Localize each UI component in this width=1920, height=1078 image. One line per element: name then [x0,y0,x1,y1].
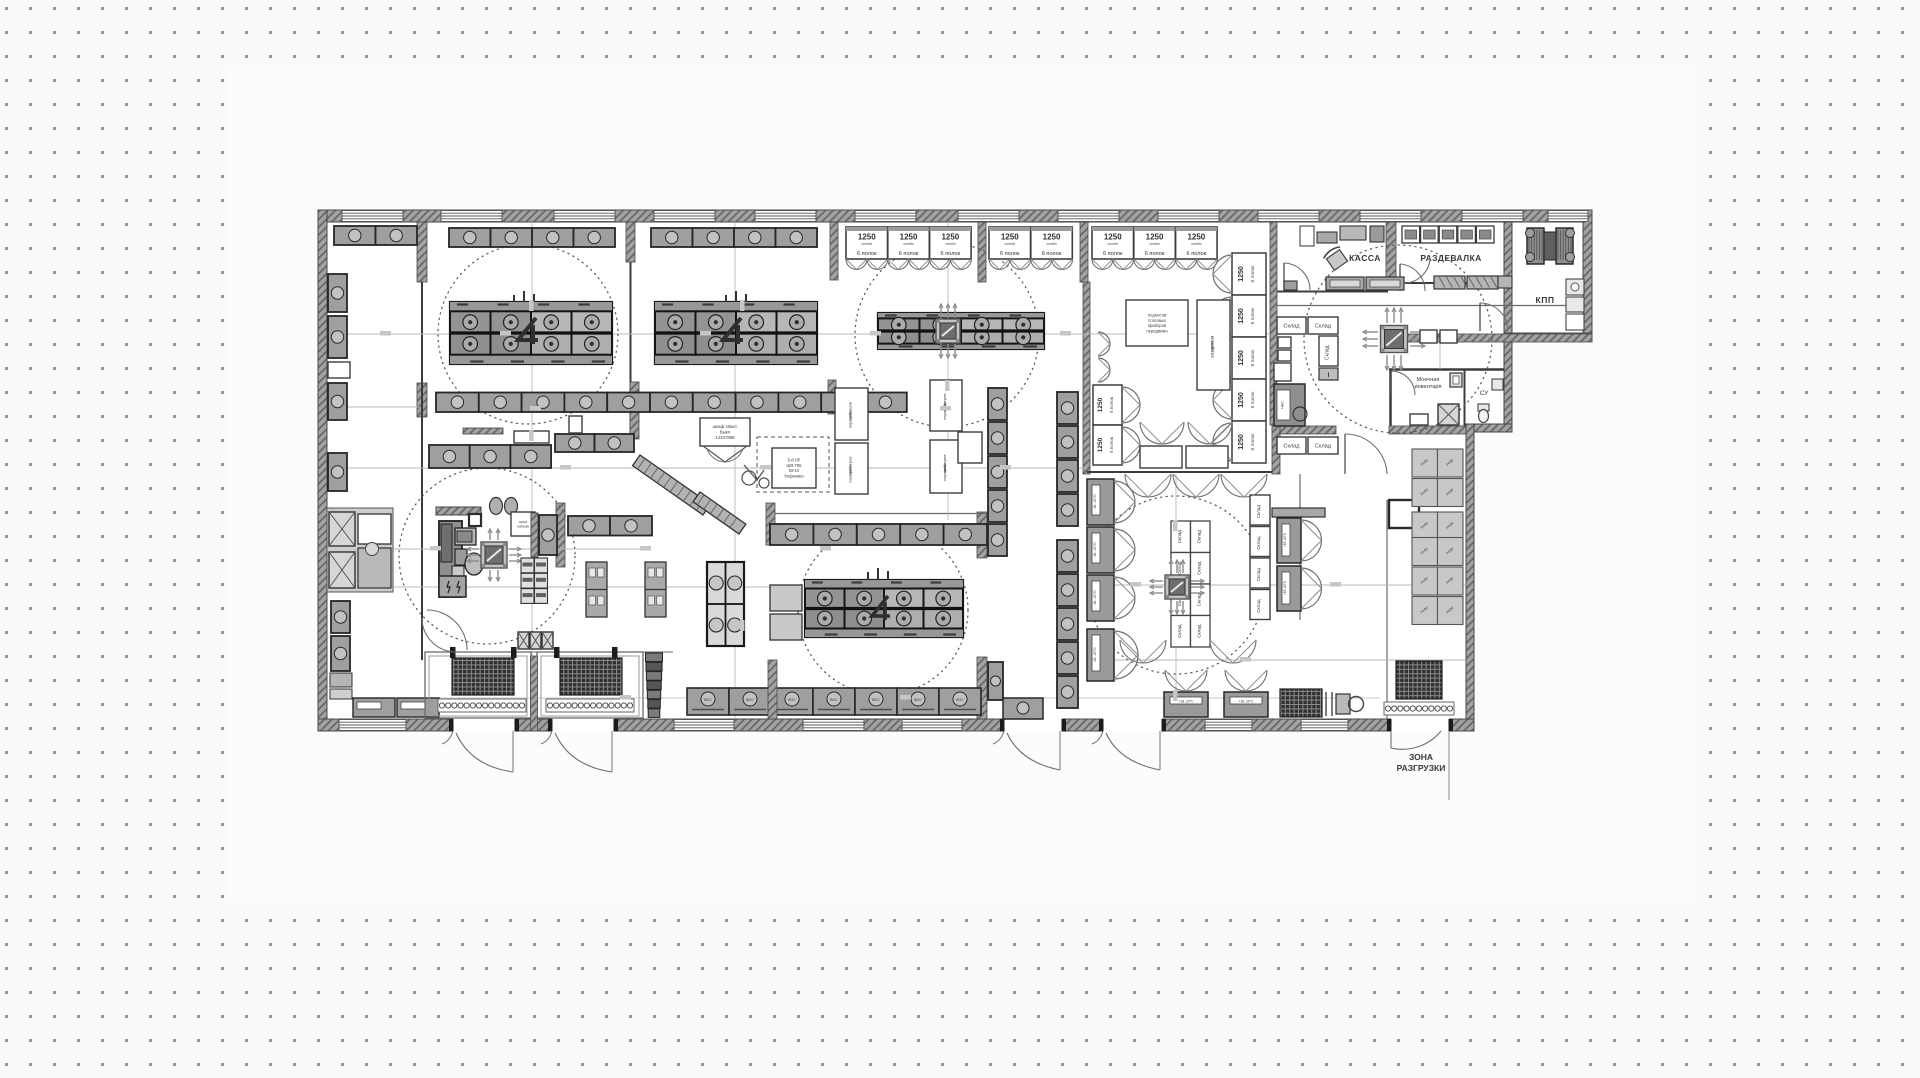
svg-text:направ: направ [517,525,529,529]
svg-text:паровой: паровой [848,467,853,482]
svg-text:1250: 1250 [1001,233,1019,242]
svg-text:1250: 1250 [1097,437,1104,452]
svg-text:14347888: 14347888 [715,435,735,440]
svg-text:линейн: линейн [1149,242,1160,246]
svg-text:1250: 1250 [1238,350,1245,366]
svg-text:1250: 1250 [1104,233,1122,242]
svg-text:ВОС: ВОС [788,698,796,702]
svg-text:1250: 1250 [1238,308,1245,324]
svg-text:Склад: Склад [1197,530,1202,544]
svg-text:6 полок: 6 полок [941,251,961,257]
svg-text:КПП: КПП [1536,295,1555,305]
svg-text:линейн: линейн [1004,242,1015,246]
svg-text:ШВ-785: ШВ-785 [786,463,802,468]
svg-text:РАЗГРУЗКИ: РАЗГРУЗКИ [1397,763,1446,773]
svg-text:Выкл: Выкл [720,430,731,435]
svg-text:шкаф-1ВыС: шкаф-1ВыС [713,424,738,429]
svg-text:6 полок: 6 полок [899,251,919,257]
svg-text:ВОС: ВОС [872,698,880,702]
svg-text:6 полок: 6 полок [1109,397,1114,413]
svg-text:1250: 1250 [858,233,876,242]
svg-text:6 полок: 6 полок [1187,251,1207,257]
svg-text:линейн: линейн [945,242,956,246]
svg-text:+18..20°С: +18..20°С [1283,580,1287,595]
svg-text:ВУ10: ВУ10 [789,468,800,473]
svg-text:Склад: Склад [1177,624,1182,638]
svg-text:5-й ЛР: 5-й ЛР [788,457,801,462]
svg-text:Склад: Склад [1325,345,1331,360]
svg-text:1250: 1250 [1097,397,1104,412]
svg-text:линейн: линейн [1107,242,1118,246]
svg-text:Склад: Склад [1197,561,1202,575]
svg-text:6 полок: 6 полок [1145,251,1165,257]
svg-text:передвижн: передвижн [1146,329,1168,334]
svg-text:1250: 1250 [1187,233,1205,242]
svg-text:столовых: столовых [1148,318,1167,323]
svg-text:Склад: Склад [1256,536,1261,550]
svg-text:Склад: Склад [1256,568,1261,582]
svg-text:1250: 1250 [1238,392,1245,408]
svg-text:-18..-20°С: -18..-20°С [1093,590,1097,606]
svg-text:Склад: Склад [1197,624,1202,638]
svg-text:СУ: СУ [1480,390,1489,397]
svg-text:6 полок: 6 полок [1109,437,1114,453]
svg-text:6 полок: 6 полок [857,251,877,257]
svg-text:1250: 1250 [1043,233,1061,242]
svg-text:инвентаря: инвентаря [1414,384,1441,390]
svg-text:Склад: Склад [1284,323,1301,329]
svg-text:Склад: Склад [1315,323,1332,329]
svg-text:линейн: линейн [1191,242,1202,246]
svg-text:-18..-20°С: -18..-20°С [1093,542,1097,558]
svg-text:приборов: приборов [1148,323,1167,328]
svg-text:6 полок: 6 полок [1250,391,1256,409]
svg-text:+18..20°С: +18..20°С [1178,700,1194,704]
svg-text:6 полок: 6 полок [1000,251,1020,257]
svg-text:6 полок: 6 полок [1103,251,1123,257]
svg-text:ВОС: ВОС [956,698,964,702]
svg-text:Склад: Склад [1256,599,1261,613]
svg-text:1250: 1250 [941,233,959,242]
svg-text:6 полок: 6 полок [1042,251,1062,257]
svg-text:паровой: паровой [848,413,853,428]
svg-text:ВОС: ВОС [914,698,922,702]
svg-text:Склад: Склад [1177,530,1182,544]
svg-text:1250: 1250 [1238,434,1245,450]
svg-text:линейн: линейн [1046,242,1057,246]
svg-text:Склад: Склад [1256,505,1261,519]
svg-text:ЧАС: ЧАС [1281,401,1285,409]
svg-text:6 полок: 6 полок [1250,433,1256,451]
svg-text:Кофемаш: Кофемаш [784,474,804,479]
svg-text:КАССА: КАССА [1349,253,1381,263]
svg-text:ВОС: ВОС [704,698,712,702]
svg-text:суши: суши [519,520,527,524]
svg-text:6 полок: 6 полок [1250,265,1256,283]
svg-text:паровой: паровой [942,465,947,480]
svg-text:ВОС: ВОС [746,698,754,702]
svg-text:линейн: линейн [861,242,872,246]
svg-text:подносов: подносов [1148,312,1167,317]
svg-text:+18..20°С: +18..20°С [1238,700,1254,704]
svg-text:6 полок: 6 полок [1250,349,1256,367]
svg-text:ЗОНА: ЗОНА [1409,752,1433,762]
svg-text:-18..-20°С: -18..-20°С [1093,494,1097,510]
svg-text:1250: 1250 [1146,233,1164,242]
svg-text:линейн: линейн [903,242,914,246]
svg-text:-18..-20°С: -18..-20°С [1093,647,1097,663]
svg-text:Склад: Склад [1284,443,1301,449]
svg-text:Моечная: Моечная [1417,377,1440,383]
svg-text:+18..20°С: +18..20°С [1283,532,1287,547]
svg-text:1250: 1250 [900,233,918,242]
svg-text:Склад: Склад [1315,443,1332,449]
svg-text:раздача: раздача [1210,341,1215,358]
svg-text:6 полок: 6 полок [1250,307,1256,325]
svg-text:ВОС: ВОС [830,698,838,702]
svg-text:1250: 1250 [1238,266,1245,282]
